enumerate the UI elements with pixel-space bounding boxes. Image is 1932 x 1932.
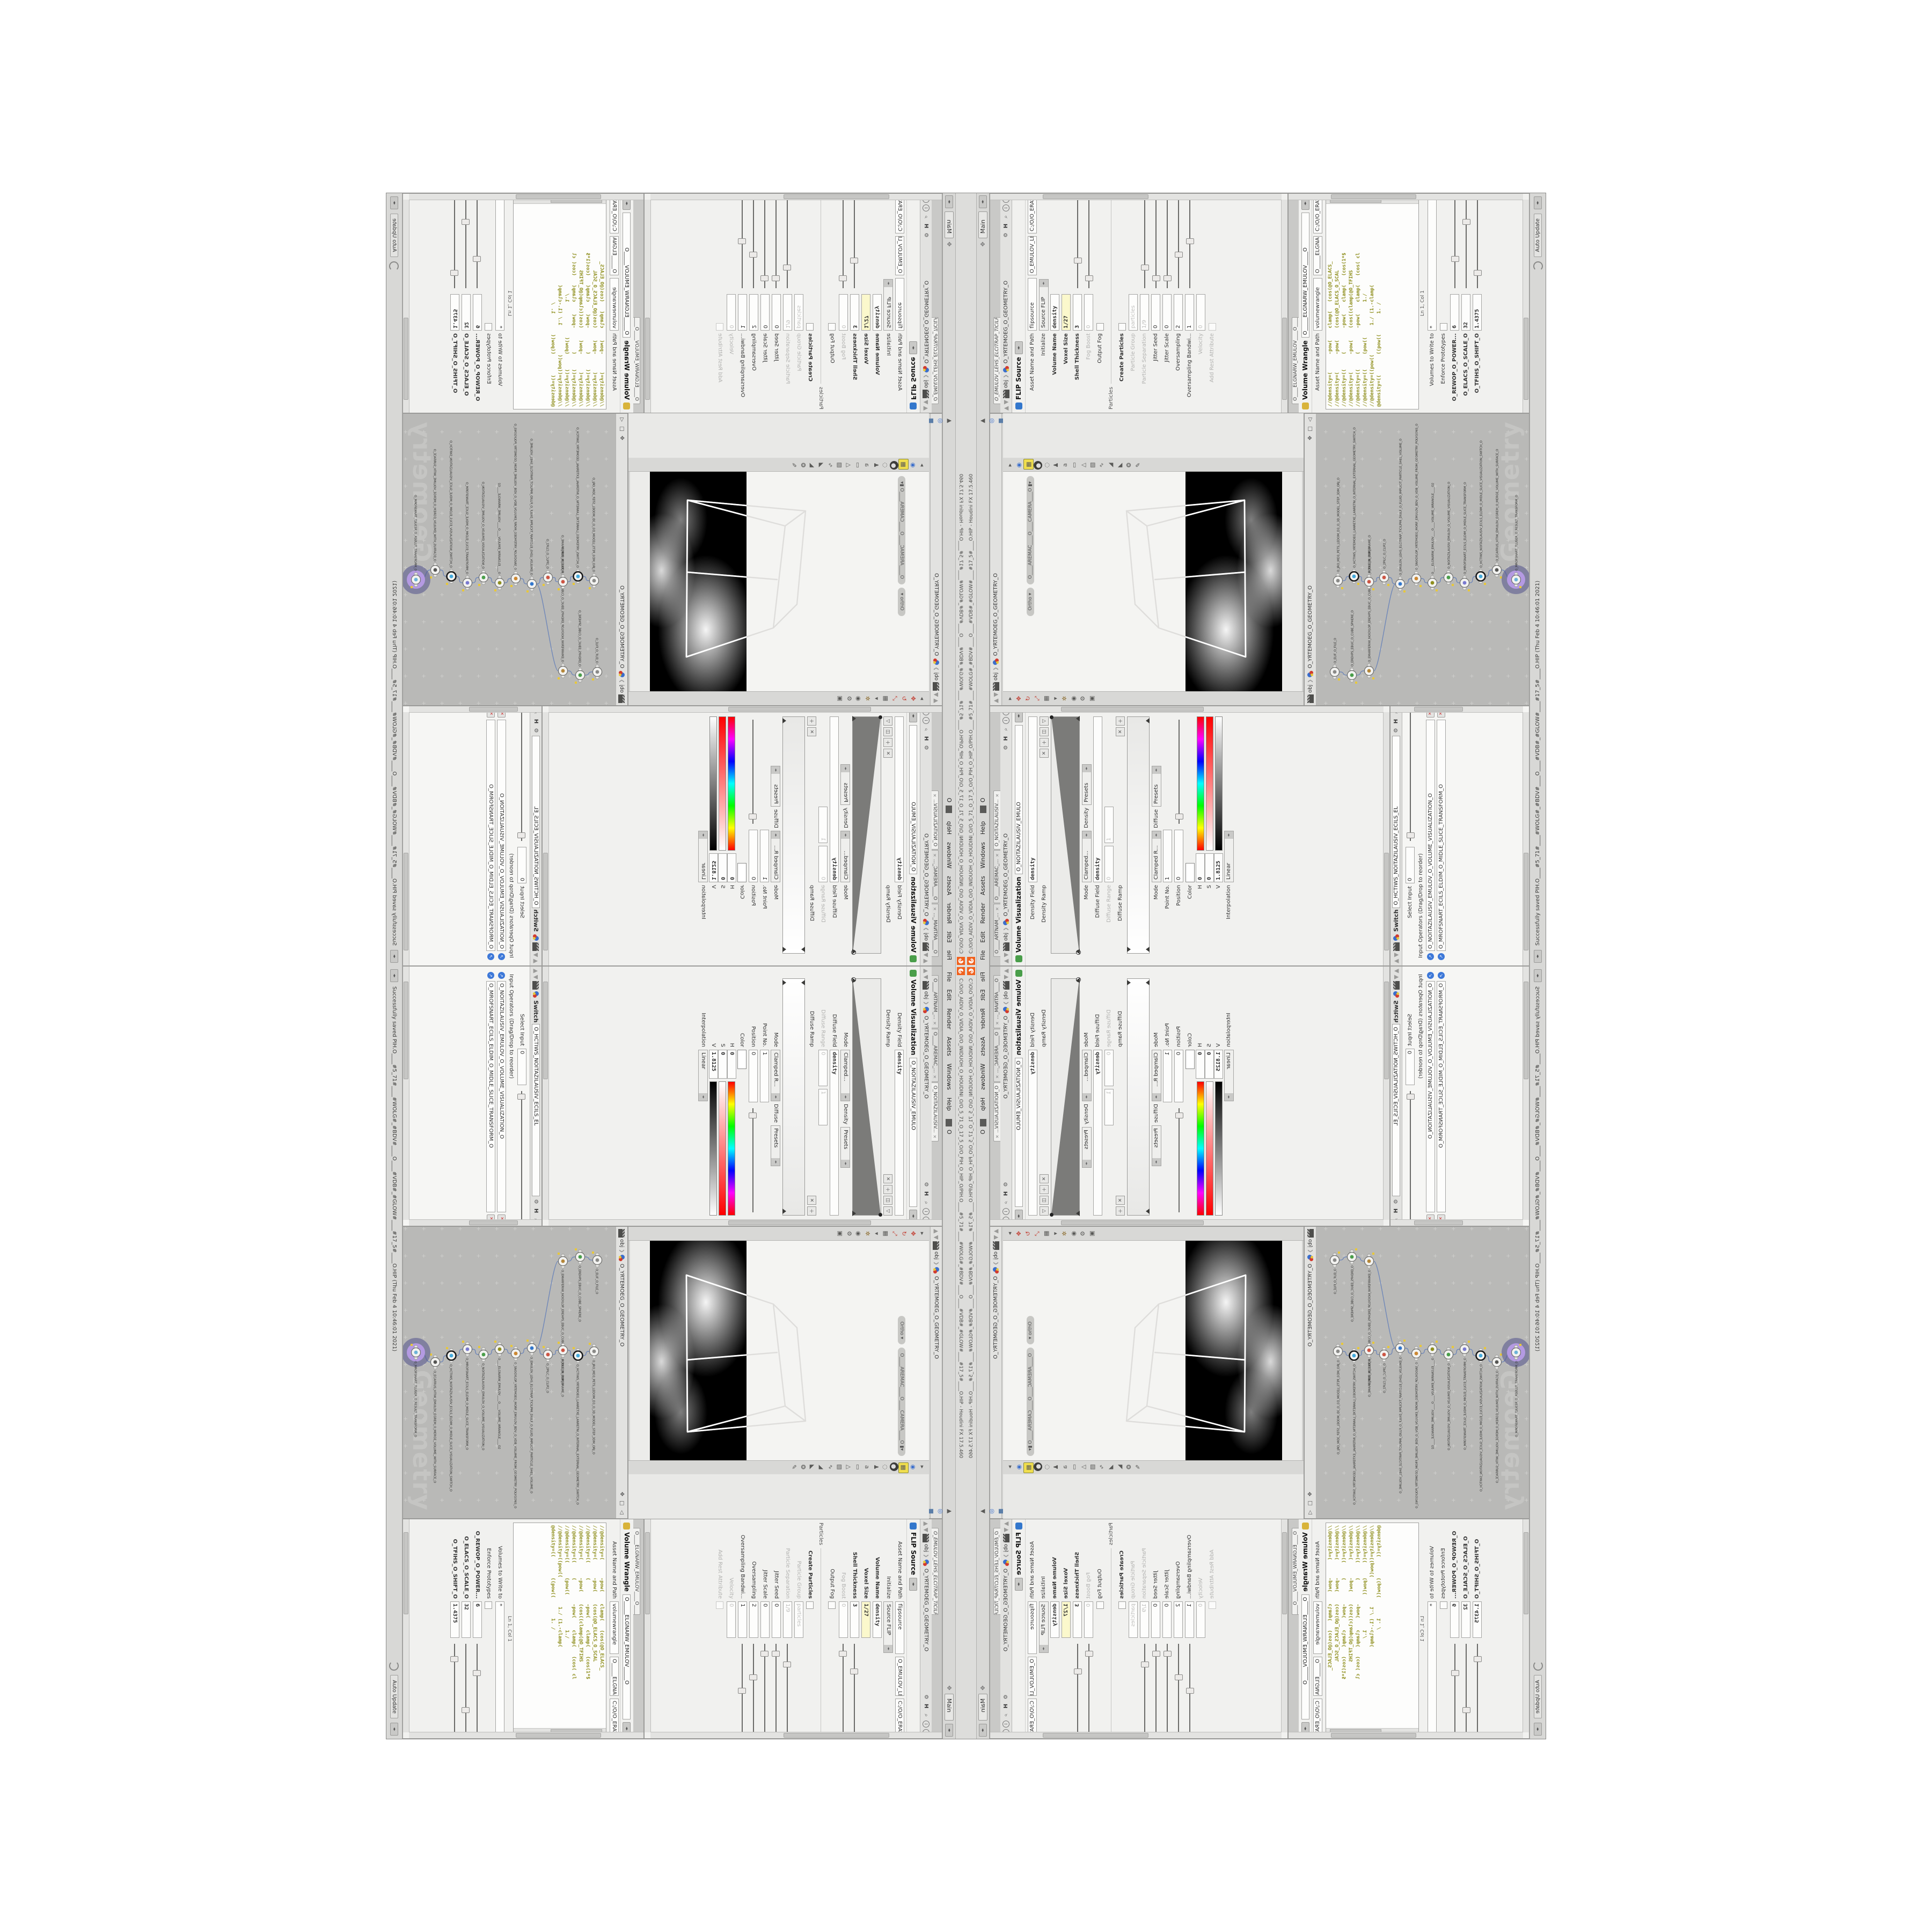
scrollbar-vertical[interactable] (990, 706, 1384, 713)
param-field[interactable]: 2 (749, 1601, 758, 1638)
node-name-field[interactable]: O_NOITAZILAUSIV_EMULO (910, 1058, 918, 1207)
ramp-marker[interactable] (1146, 718, 1150, 723)
param-field[interactable]: * (495, 197, 504, 331)
nav-up-icon[interactable]: ▲ (532, 969, 539, 973)
handles-icon[interactable]: ▦ (1042, 694, 1051, 704)
param-field[interactable]: 2 (1174, 1601, 1183, 1638)
param-slider[interactable] (854, 1644, 855, 1732)
box-tool-icon[interactable]: ▭ (853, 1462, 862, 1472)
tab-volume-wrangle[interactable]: O____ELGNARW_EMULOV____O____VOLUME_WRANG… (1292, 317, 1299, 404)
snap-icon[interactable]: ✲ (1060, 1229, 1069, 1239)
presets2-dropdown[interactable]: Presets◂▸ (1152, 766, 1161, 807)
nav-down-icon[interactable]: ▼ (923, 953, 930, 957)
checkbox[interactable] (829, 323, 836, 331)
obj-clapper-icon[interactable] (923, 1534, 930, 1542)
asset-name-field[interactable]: flipsource (1028, 1601, 1037, 1654)
param-slider[interactable] (1466, 1644, 1467, 1732)
reorder-arrow-icon[interactable]: ↗ (488, 953, 495, 960)
curve-tool-icon[interactable]: ∿ (1097, 460, 1106, 470)
geometry-balls-icon[interactable] (933, 657, 940, 665)
node-spinner[interactable]: ◂▸ (910, 341, 918, 354)
node-spinner[interactable]: ◂▸ (910, 1578, 918, 1591)
close-icon[interactable]: ✕ (995, 1135, 1000, 1139)
points-box-tool-icon[interactable]: ▧ (1088, 1462, 1097, 1472)
scrollbar-vertical[interactable] (650, 194, 942, 200)
node-name-field[interactable]: O_NOITAZILAUSIV_EMULO (1015, 1058, 1023, 1207)
asset-name-field[interactable]: volumewrangle (610, 1601, 619, 1654)
nav-down-icon[interactable]: ▼ (923, 975, 930, 979)
vex-code-editor[interactable]: //@density=( -pow( clamp( (cos(@O_ELACS_… (1326, 197, 1419, 409)
param-field[interactable]: 1 (1185, 1601, 1194, 1638)
mode-dropdown[interactable]: Clamped...◂▸ (1082, 831, 1092, 882)
nav-down-icon[interactable]: ▼ (1393, 975, 1400, 979)
network-node[interactable]: O_EREHPS_EBUC_O_CUBE_SPHERE_O (575, 1248, 585, 1322)
param-slider[interactable] (1189, 1644, 1190, 1732)
node-spinner[interactable]: ◂▸ (1015, 1578, 1023, 1591)
dropdown[interactable]: Source FLIP◂▸ (884, 1601, 894, 1653)
param-field[interactable]: 32 (1461, 294, 1470, 331)
expand-icon[interactable]: ▸ (1005, 460, 1014, 470)
close-icon[interactable]: ✕ (933, 1135, 938, 1139)
node-name-field[interactable]: O_____ELGNARW_EMULOV_____O (623, 1594, 631, 1719)
select-tool-icon[interactable]: ▸ (918, 1229, 927, 1239)
geometry-balls-icon[interactable] (1003, 1007, 1009, 1014)
abc-text-tool-icon[interactable]: a (862, 460, 872, 470)
menu-file[interactable]: File (978, 947, 987, 964)
points-box-tool-icon[interactable]: ▧ (1088, 460, 1097, 470)
param-field[interactable]: 1/9 (1140, 1601, 1149, 1638)
param-field[interactable]: 1.4375 (1473, 294, 1482, 331)
obj-label[interactable]: obj (923, 933, 929, 941)
obj-label[interactable]: obj (1003, 380, 1009, 388)
network-node[interactable]: O_ECAFRUS_HTIW_EMULOV_EGREM_O_MERGE_VOLU… (430, 449, 440, 579)
color-swatch[interactable] (737, 1050, 747, 1069)
obj-clapper-icon[interactable] (993, 1241, 999, 1250)
geometry-balls-icon[interactable] (993, 1267, 999, 1275)
dark-sphere-icon[interactable]: ● (1034, 1462, 1042, 1471)
node-spinner[interactable]: ◂▸ (1015, 341, 1023, 354)
dark-sphere-icon[interactable]: ● (1034, 462, 1042, 470)
obj-clapper-icon[interactable] (1003, 1534, 1009, 1542)
layout-grid-icon[interactable] (946, 1119, 953, 1126)
obj-clapper-icon[interactable] (1003, 942, 1009, 951)
snap-icon[interactable]: ✲ (863, 694, 872, 704)
mode-dropdown[interactable]: Clamped...◂▸ (1082, 1050, 1092, 1101)
grid-toggle-icon[interactable]: ▣ (836, 694, 845, 704)
network-node[interactable]: O_SNOGYLOP_YRTEMOEG_MORF_EMULOV_BDV_O_VD… (1412, 423, 1422, 587)
pane-maximize-icon[interactable]: □ (1307, 425, 1314, 433)
point-no-value[interactable]: 1 (760, 830, 769, 882)
param-field[interactable]: 2 (749, 294, 758, 331)
network-canvas[interactable]: + + + + + + + + + + + + + + + + + + + + … (403, 414, 616, 705)
bullseye-icon[interactable]: ◎ (936, 1506, 946, 1516)
tab-mantra[interactable]: O____ARTNAM_...✕ (993, 904, 1000, 957)
network-node[interactable]: O_ELIF_O_FILE_O (1330, 638, 1341, 680)
obj-label[interactable]: obj (619, 1239, 625, 1247)
dropdown[interactable]: Source FLIP◂▸ (1039, 1601, 1049, 1653)
abc-text-tool-icon[interactable]: a (862, 1462, 872, 1472)
network-node[interactable]: O____ELGNARW_EMULOV____O____VOLUME_WRANG… (494, 483, 504, 591)
tool-dropdown-icon[interactable]: ▾ (872, 694, 881, 704)
obj-label[interactable]: obj (619, 685, 625, 693)
gear-icon[interactable]: ⚙ (1002, 744, 1010, 751)
input-operator-2[interactable]: O_MROFSNART_ECILS_ELDIM_O_MIDLE_SLICE_TR… (1437, 720, 1446, 951)
status-spinner[interactable]: ◂▸ (390, 950, 398, 963)
switch-node-field[interactable]: O_HCTIWS_NOITAZILAUSIV_ECILS_EL (532, 736, 540, 908)
network-canvas[interactable]: + + + + + + + + + + + + + + + + + + + + … (1316, 1227, 1529, 1518)
param-field[interactable]: 6 (1450, 1601, 1459, 1638)
scrollbar-horizontal[interactable] (1523, 967, 1529, 1220)
gear-icon[interactable]: ⚙ (532, 727, 540, 734)
param-field[interactable]: 3 (1073, 1601, 1082, 1638)
handles-icon[interactable]: ▦ (1042, 1229, 1051, 1239)
character-tool-icon[interactable]: ♟ (872, 1462, 881, 1472)
scrollbar-horizontal[interactable] (645, 1519, 651, 1732)
network-node[interactable]: O_MROFSNART_ECILS_ELDIM_O_MIDLE_SLICE_TR… (462, 482, 472, 591)
hsv-value-V[interactable]: 1.8125 (709, 1050, 718, 1079)
auto-update-button[interactable]: Auto Update (1534, 214, 1542, 257)
point-no-value[interactable]: 1 (760, 1050, 769, 1102)
gear-icon[interactable]: ⚙ (923, 1693, 930, 1701)
network-canvas[interactable]: + + + + + + + + + + + + + + + + + + + + … (403, 1227, 616, 1518)
quadview-grid-icon[interactable]: ▦ (898, 459, 909, 470)
box-tool-icon[interactable]: ▭ (853, 460, 862, 470)
menu-help[interactable]: Help (945, 817, 954, 838)
checkbox[interactable] (716, 323, 724, 331)
param-slider[interactable] (1144, 200, 1145, 288)
snap-icon[interactable]: ✲ (1060, 694, 1069, 704)
tripod-tool-icon[interactable]: △ (1079, 1462, 1088, 1472)
ramp-marker[interactable] (1146, 1209, 1150, 1214)
asset-op-field[interactable]: O_____ELGNARW_EMULOV_____O (610, 1657, 619, 1696)
scrollbar-horizontal[interactable] (1523, 200, 1529, 413)
tool-dropdown-icon[interactable]: ▾ (1051, 1229, 1060, 1239)
ramp-marker[interactable] (852, 949, 856, 954)
ramp-flip-button[interactable]: ◫ (883, 1196, 892, 1205)
network-path[interactable]: O_YRTEMOEG_O_GEOMETRY_O (1003, 833, 1009, 916)
ramp-collapse-button[interactable]: ▽ (883, 1206, 892, 1216)
pane-maximize-icon[interactable]: □ (1307, 1499, 1314, 1507)
handles-icon[interactable]: ▦ (881, 694, 890, 704)
move-tool-icon[interactable]: ✥ (1014, 694, 1023, 704)
tool-dropdown-icon[interactable]: ▾ (872, 1229, 881, 1239)
input-operator-2[interactable]: O_MROFSNART_ECILS_ELDIM_O_MIDLE_SLICE_TR… (487, 720, 496, 951)
network-node[interactable]: O_HCTIWS_NOITAZILAUSIV_ECILS_ELDIM_O_MID… (1476, 1347, 1487, 1492)
tab-visualization[interactable]: O_NOITAZILAUSIV...✕ (932, 791, 939, 850)
nav-down-icon[interactable]: ▼ (992, 692, 999, 697)
ring-tool-icon[interactable]: ❂ (799, 1462, 808, 1472)
stand-icon[interactable]: ▲ (978, 416, 987, 426)
cone-tool-icon[interactable]: ◢ (1106, 1462, 1115, 1472)
param-slider[interactable] (1144, 1644, 1145, 1732)
houdini-h-icon[interactable]: H (1002, 1190, 1010, 1197)
info-icon[interactable]: i (923, 717, 930, 724)
switch-node-field[interactable]: O_HCTIWS_NOITAZILAUSIV_ECILS_EL (1392, 1024, 1400, 1196)
obj-clapper-icon[interactable] (1307, 694, 1314, 703)
network-path[interactable]: O_YRTEMOEG_O_GEOMETRY_O (619, 586, 625, 668)
select-input-value[interactable]: 0 (517, 847, 526, 883)
houdini-h-icon[interactable]: H (1002, 735, 1010, 742)
rotate-tool-icon[interactable]: ↻ (899, 694, 909, 704)
expand-icon[interactable]: ▸ (1005, 1462, 1014, 1472)
param-field[interactable]: 0 (772, 1601, 781, 1638)
character-tool-icon[interactable]: ♟ (1051, 1462, 1060, 1472)
ortho-pill[interactable]: Ortho ▾ (898, 588, 905, 616)
asset-op-field[interactable]: O_EMULOV_LEHS_ELCITRAP_TICI (1028, 1657, 1037, 1696)
ramp-marker[interactable] (1076, 978, 1080, 983)
ramp-marker[interactable] (782, 980, 786, 985)
houdini-h-icon[interactable]: H (532, 1207, 540, 1214)
presets2-dropdown[interactable]: Presets◂▸ (771, 1125, 781, 1166)
pivot-icon[interactable]: ◉ (854, 694, 863, 704)
select-tool-icon[interactable]: ▸ (1005, 694, 1014, 704)
param-field[interactable]: 0 (839, 1601, 848, 1638)
hsv-value-H[interactable]: 0 (1196, 853, 1205, 882)
menu-assets[interactable]: Assets (978, 1033, 987, 1060)
menu-edit[interactable]: Edit (945, 985, 954, 1004)
network-node[interactable]: O_HCTIWS_YRTEMOEG_LANRETXE_LANRETNI_O_IN… (573, 427, 583, 585)
param-field[interactable]: 1 (738, 294, 747, 331)
network-path[interactable]: O_YRTEMOEG_O_GEOMETRY_O (1003, 1569, 1009, 1651)
info-icon[interactable]: i (1002, 717, 1009, 724)
scale-tool-icon[interactable]: ⤢ (890, 694, 899, 704)
diffuse-range-max[interactable]: 1 (818, 807, 828, 843)
search-icon[interactable]: ⌕ (1002, 1711, 1010, 1719)
status-spinner2[interactable]: ◂▸ (390, 1723, 398, 1736)
param-field[interactable]: 0 (1151, 294, 1160, 331)
cone2-tool-icon[interactable]: ◣ (1115, 460, 1124, 470)
nav-down-icon[interactable]: ▼ (1002, 975, 1009, 979)
obj-label[interactable]: obj (1003, 933, 1009, 941)
tab-camera[interactable]: O____AREMAC_...✕ (993, 850, 1000, 903)
pane-maximize-icon[interactable]: □ (618, 1499, 626, 1507)
close-icon[interactable]: ✕ (933, 853, 938, 857)
search-icon[interactable]: ⌕ (1002, 726, 1010, 733)
options-gear-icon[interactable]: ⚙ (1078, 694, 1087, 704)
hsv-gradient-hue[interactable] (1197, 1081, 1204, 1216)
houdini-h-icon[interactable]: H (1393, 718, 1400, 725)
ring-tool-icon[interactable]: ❂ (799, 460, 808, 470)
camera-pill[interactable]: O____AREMAC____O____CAMERA____O ▮▾ (898, 1348, 905, 1456)
houdini-h-icon[interactable]: H (1002, 222, 1010, 230)
asset-path-field[interactable]: C:/O/O_ERAWTF... (610, 197, 619, 233)
geometry-balls-icon[interactable] (1393, 991, 1400, 999)
menu-spinner[interactable]: ◂▸ (945, 195, 953, 208)
network-node[interactable]: O_MROFSNART_ECILS_ELDIM_O_MIDLE_SLICE_TR… (1460, 482, 1470, 591)
density-ramp-widget[interactable] (1051, 716, 1080, 954)
point-no-value[interactable]: 1 (1163, 1050, 1172, 1102)
input-operator-2[interactable]: O_MROFSNART_ECILS_ELDIM_O_MIDLE_SLICE_TR… (1437, 981, 1446, 1212)
select-input-slider[interactable] (522, 1091, 523, 1219)
camera-pill[interactable]: O____AREMAC____O____CAMERA____O ▮▾ (1027, 476, 1034, 584)
nav-up-icon[interactable]: ▲ (1002, 1521, 1009, 1526)
position-value[interactable]: 0 (749, 1050, 758, 1102)
network-node[interactable]: O____ELGNARW_EMULOV____O____VOLUME_WRANG… (1428, 483, 1438, 591)
view-eye-icon[interactable]: ◉ (909, 1462, 918, 1472)
diffuse-ramp-widget[interactable] (1127, 978, 1150, 1216)
layout-grid-icon[interactable] (980, 806, 986, 813)
input-operator-2[interactable]: O_MROFSNART_ECILS_ELDIM_O_MIDLE_SLICE_TR… (487, 981, 496, 1212)
position-value[interactable]: 0 (1174, 830, 1183, 882)
nav-up-icon[interactable]: ▲ (923, 406, 930, 411)
geometry-balls-icon[interactable] (1393, 933, 1400, 941)
param-slider[interactable] (455, 200, 456, 288)
density-ramp-widget[interactable] (852, 716, 881, 954)
geometry-balls-icon[interactable] (1003, 1560, 1009, 1567)
param-slider[interactable] (1167, 1644, 1168, 1732)
view-eye-icon[interactable]: ◉ (1014, 1462, 1023, 1472)
hsv-value-V[interactable]: 1.8125 (1214, 1050, 1223, 1079)
asset-path-field[interactable]: C:/O/O_ERAWTF... (895, 1699, 904, 1735)
nav-down-icon[interactable]: ▼ (933, 1235, 940, 1239)
nav-down-icon[interactable]: ▼ (923, 1527, 930, 1532)
ramp-marker[interactable] (852, 978, 856, 983)
ramp-marker[interactable] (1146, 947, 1150, 952)
network-node[interactable]: O_ECAFRUS_HTIW_EMULOV_EGREM_O_MERGE_VOLU… (1492, 1353, 1503, 1483)
param-field[interactable]: * (1428, 197, 1437, 331)
param-field[interactable]: 6 (473, 1601, 482, 1638)
network-node[interactable]: O_MROFSNART_TLUSER_O_RESULT_TRANSFORM_O (403, 495, 430, 594)
param-field[interactable]: 32 (1461, 1601, 1470, 1638)
search-icon[interactable]: ⌕ (923, 726, 930, 733)
mode2-dropdown[interactable]: Clamped R...◂▸ (771, 1050, 781, 1101)
nav-up-icon[interactable]: ▲ (1002, 406, 1009, 411)
scrollbar-horizontal[interactable] (1523, 1519, 1529, 1732)
param-field[interactable]: 2 (1174, 294, 1183, 331)
param-field[interactable]: 1/27 (1062, 1601, 1071, 1638)
close-icon[interactable]: ✕ (933, 1021, 938, 1025)
scrollbar-vertical[interactable] (1391, 1219, 1523, 1226)
input-operator-1[interactable]: O_NOITAZILAUSIV_EMULOV_O_VOLUME_VISUALIZ… (497, 720, 507, 951)
network-node[interactable]: O_ECAFRUS_HTIW_EMULOV_EGREM_O_MERGE_VOLU… (1492, 449, 1503, 579)
auto-update-button[interactable]: Auto Update (1534, 1675, 1542, 1718)
menu-spinner[interactable]: ◂▸ (979, 1724, 987, 1737)
geometry-balls-icon[interactable] (533, 991, 539, 999)
ramp-delete-button[interactable]: ✕ (1040, 749, 1049, 758)
menu-help[interactable]: Help (978, 817, 987, 838)
status-spinner2[interactable]: ◂▸ (390, 196, 398, 209)
layout-grid-icon[interactable] (980, 1119, 986, 1126)
param-field[interactable]: 1/9 (783, 1601, 792, 1638)
auto-update-button[interactable]: Auto Update (390, 214, 398, 257)
tab-mantra[interactable]: O____ARTNAM_...✕ (993, 975, 1000, 1028)
obj-label[interactable]: obj (1307, 685, 1313, 693)
position-slider[interactable] (1179, 720, 1180, 824)
network-path[interactable]: O_YRTEMOEG_O_GEOMETRY_O (923, 281, 929, 363)
select-tool-icon[interactable]: ▸ (918, 694, 927, 704)
scrollbar-horizontal[interactable] (543, 712, 549, 965)
ramp-marker[interactable] (852, 1211, 856, 1216)
network-node[interactable]: O_HCTIWS_YRTEMOEG_LANRETXE_LANRETNI_O_IN… (1350, 1347, 1360, 1505)
param-field[interactable]: 0 (1084, 1601, 1093, 1638)
bullseye-icon[interactable]: ◎ (987, 1506, 996, 1516)
quadview-grid-icon[interactable]: ▦ (1023, 1462, 1034, 1473)
tab-volume-wrangle[interactable]: O____ELGNARW_EMULOV____O____VOLUME_WRANG… (633, 1528, 640, 1615)
scrollbar-vertical[interactable] (990, 1732, 1282, 1738)
bullseye-icon[interactable]: ◎ (987, 416, 996, 426)
param-slider[interactable] (1088, 1644, 1089, 1732)
pointer-pill-icon[interactable]: ◌ (1042, 460, 1051, 470)
ortho-pill[interactable]: Ortho ▾ (1027, 588, 1034, 616)
hsv-value-S[interactable]: 0 (718, 1050, 727, 1079)
viewport-canvas[interactable]: Ortho ▾ O____AREMAC____O____CAMERA____O … (630, 472, 929, 691)
param-field[interactable]: 6 (473, 294, 482, 331)
hsv-gradient-sat[interactable] (719, 1081, 727, 1216)
param-field[interactable]: 1/9 (1140, 294, 1149, 331)
hsv-value-V[interactable]: 1.8125 (1214, 853, 1223, 882)
search-icon[interactable]: ⌕ (923, 1199, 930, 1206)
network-path[interactable]: O_YRTEMOEG_O_GEOMETRY_O (923, 833, 929, 916)
presets2-dropdown[interactable]: Presets◂▸ (771, 766, 781, 807)
houdini-h-icon[interactable]: H (532, 718, 540, 725)
param-slider[interactable] (753, 1644, 755, 1732)
cone2-tool-icon[interactable]: ◣ (808, 1462, 817, 1472)
handles-icon[interactable]: ▦ (881, 1229, 890, 1239)
checkbox[interactable] (1209, 1601, 1216, 1609)
pane-split-icon[interactable]: ◁ (1307, 1509, 1314, 1516)
position-value[interactable]: 0 (1174, 1050, 1183, 1102)
ramp-delete-button[interactable]: ✕ (807, 1196, 816, 1205)
param-slider[interactable] (765, 1644, 766, 1732)
search-icon[interactable]: ⌕ (1002, 213, 1010, 221)
gear-icon[interactable]: ⚙ (1393, 727, 1400, 734)
network-node[interactable]: O_EMULOV_LEHS_ELCITRAP_TICILPMI_DIULF_O_… (526, 438, 537, 592)
hsv-gradient-hue[interactable] (728, 716, 736, 851)
ramp-add-button[interactable]: ＋ (883, 1185, 892, 1194)
mode-dropdown[interactable]: Clamped...◂▸ (841, 1050, 851, 1101)
abc-text-tool-icon[interactable]: a (1060, 460, 1070, 470)
position-slider[interactable] (1179, 1108, 1180, 1212)
menu-windows[interactable]: Windows (978, 1060, 987, 1094)
density-field-value[interactable]: density (895, 1050, 904, 1216)
checkbox[interactable] (1096, 323, 1104, 331)
param-slider[interactable] (742, 200, 743, 288)
scrollbar-vertical[interactable] (1289, 1732, 1523, 1738)
asset-op-field[interactable]: O_EMULOV_LEHS_ELCITRAP_TICI (895, 236, 904, 275)
network-node[interactable]: O_EMULOV_LEHS_ELCITRAP_TICILPMI_DIULF_O_… (526, 1340, 537, 1494)
info-icon[interactable]: i (923, 1208, 930, 1215)
param-slider[interactable] (1077, 200, 1078, 288)
param-field[interactable]: 0 (1196, 1601, 1205, 1638)
mode-dropdown[interactable]: Clamped...◂▸ (841, 831, 851, 882)
ramp-flip-button[interactable]: ◫ (1040, 1196, 1049, 1205)
scrollbar-vertical[interactable] (548, 1219, 942, 1226)
diffuse-field-value[interactable]: density (1093, 1050, 1102, 1216)
asset-op-field[interactable]: O_____ELGNARW_EMULOV_____O (1313, 236, 1322, 275)
reorder-arrow-icon[interactable]: ↗ (1427, 953, 1434, 960)
ramp-delete-button[interactable]: ✕ (883, 749, 892, 758)
obj-clapper-icon[interactable] (533, 942, 539, 951)
move-tool-icon[interactable]: ✥ (909, 694, 918, 704)
param-field[interactable]: 0 (1162, 294, 1172, 331)
ramp-marker[interactable] (1076, 716, 1080, 721)
tab-volume-wrangle[interactable]: O____ELGNARW_EMULOV____O____VOLUME_WRANG… (633, 317, 640, 404)
gear-icon[interactable]: ⚙ (1002, 1693, 1010, 1701)
menu-help[interactable]: Help (978, 1094, 987, 1115)
network-path[interactable]: O_YRTEMOEG_O_GEOMETRY_O (923, 1569, 929, 1651)
status-spinner[interactable]: ◂▸ (390, 969, 398, 982)
dropdown[interactable]: Source FLIP◂▸ (884, 279, 894, 331)
param-slider[interactable] (1189, 200, 1190, 288)
param-field[interactable]: density (1050, 1601, 1059, 1638)
ramp-handle-end[interactable] (879, 715, 882, 719)
network-node[interactable]: O_SNOGYLOP_YRTEMOEG_MORF_EMULOV_BDV_O_VD… (1412, 1345, 1422, 1509)
close-icon[interactable]: ✕ (995, 907, 1000, 911)
node-name-field[interactable]: O_NOITAZILAUSIV_EMULO (1015, 725, 1023, 874)
pane-expand-icon[interactable]: ✥ (618, 1490, 626, 1498)
geometry-balls-icon[interactable] (923, 1560, 930, 1567)
rotate-tool-icon[interactable]: ↻ (1023, 1229, 1033, 1239)
